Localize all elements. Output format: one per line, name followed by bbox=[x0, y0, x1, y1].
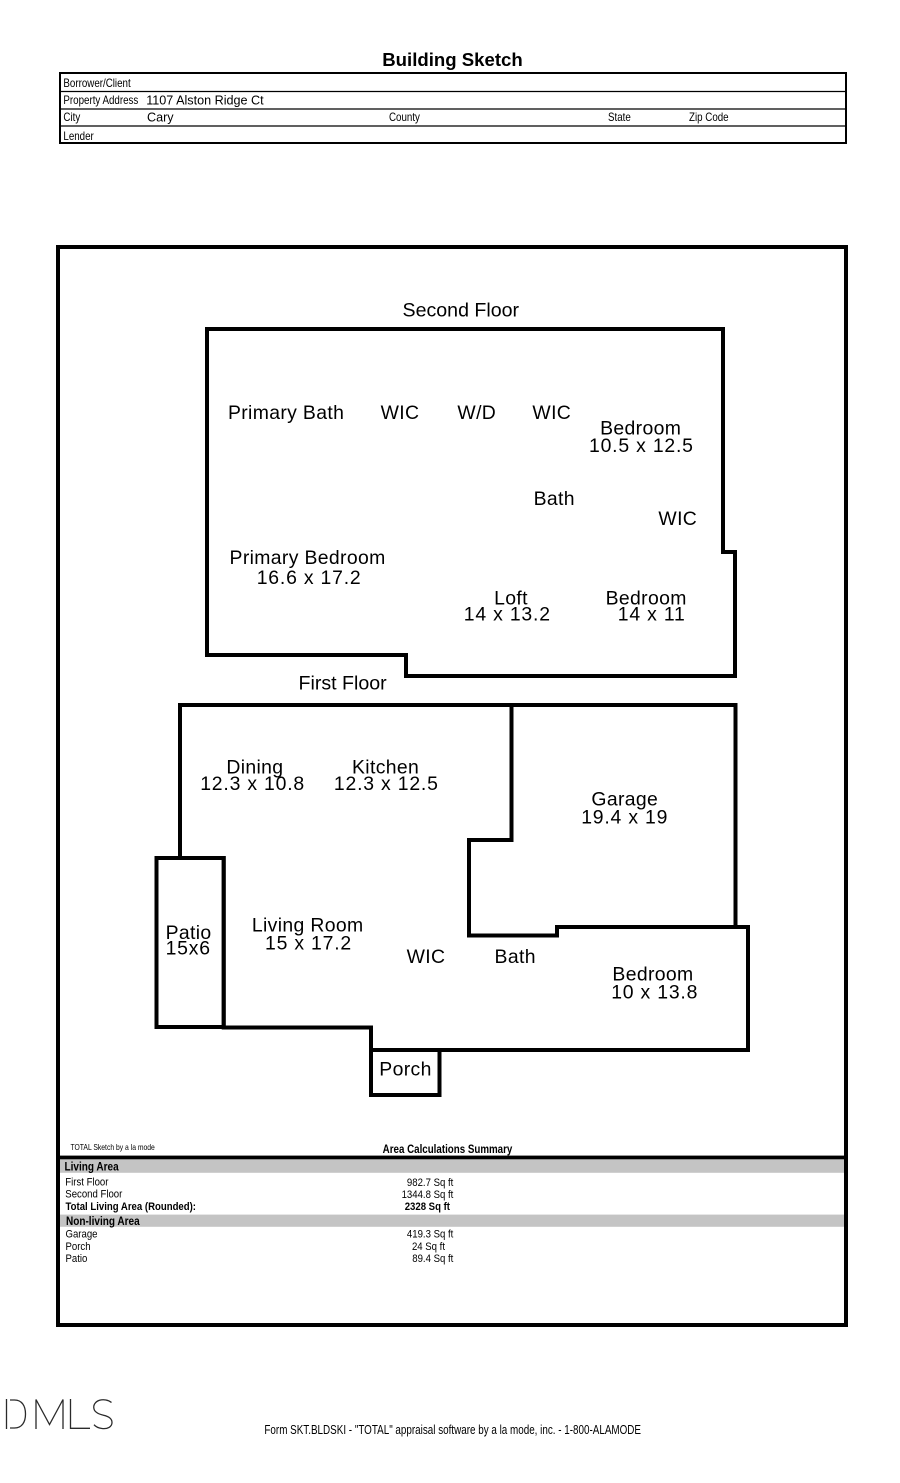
svg-text:First Floor: First Floor bbox=[65, 1177, 109, 1189]
svg-text:WIC: WIC bbox=[381, 402, 420, 424]
svg-text:Building Sketch: Building Sketch bbox=[382, 49, 523, 70]
svg-text:W/D: W/D bbox=[457, 402, 496, 424]
svg-text:Property Address: Property Address bbox=[63, 94, 138, 107]
svg-text:Cary: Cary bbox=[147, 109, 174, 124]
svg-text:Second Floor: Second Floor bbox=[403, 300, 520, 322]
svg-text:County: County bbox=[389, 111, 421, 124]
svg-text:WIC: WIC bbox=[532, 402, 571, 424]
svg-text:City: City bbox=[63, 111, 80, 124]
svg-text:Garage: Garage bbox=[66, 1229, 98, 1241]
svg-text:14 x 13.2: 14 x 13.2 bbox=[464, 604, 551, 626]
svg-text:89.4 Sq ft: 89.4 Sq ft bbox=[412, 1253, 453, 1265]
svg-text:Form SKT.BLDSKI - "TOTAL" appr: Form SKT.BLDSKI - "TOTAL" appraisal soft… bbox=[264, 1424, 641, 1437]
svg-text:Total Living Area (Rounded):: Total Living Area (Rounded): bbox=[66, 1202, 197, 1214]
svg-text:Porch: Porch bbox=[379, 1059, 431, 1081]
svg-text:1107 Alston Ridge Ct: 1107 Alston Ridge Ct bbox=[146, 92, 264, 107]
svg-text:15x6: 15x6 bbox=[166, 937, 211, 959]
svg-text:10.5 x 12.5: 10.5 x 12.5 bbox=[589, 435, 694, 457]
svg-text:15 x 17.2: 15 x 17.2 bbox=[265, 933, 352, 955]
svg-text:14 x 11: 14 x 11 bbox=[618, 604, 686, 626]
svg-text:Bath: Bath bbox=[495, 946, 536, 968]
svg-text:WIC: WIC bbox=[658, 508, 697, 530]
svg-text:12.3 x 10.8: 12.3 x 10.8 bbox=[200, 773, 305, 795]
svg-text:Second Floor: Second Floor bbox=[65, 1189, 123, 1201]
svg-text:Area Calculations Summary: Area Calculations Summary bbox=[383, 1143, 513, 1156]
svg-text:First Floor: First Floor bbox=[299, 673, 388, 695]
svg-text:Non-living Area: Non-living Area bbox=[66, 1215, 140, 1228]
svg-text:1344.8 Sq ft: 1344.8 Sq ft bbox=[402, 1189, 454, 1201]
svg-text:10 x 13.8: 10 x 13.8 bbox=[611, 982, 698, 1004]
svg-text:Borrower/Client: Borrower/Client bbox=[63, 77, 130, 90]
svg-text:Living Area: Living Area bbox=[65, 1161, 120, 1174]
svg-text:Bath: Bath bbox=[534, 488, 575, 510]
svg-text:Porch: Porch bbox=[66, 1241, 91, 1253]
svg-text:16.6 x 17.2: 16.6 x 17.2 bbox=[257, 567, 362, 589]
svg-text:982.7 Sq ft: 982.7 Sq ft bbox=[407, 1177, 453, 1189]
svg-text:Primary Bedroom: Primary Bedroom bbox=[230, 547, 386, 569]
svg-text:Zip Code: Zip Code bbox=[689, 111, 729, 124]
svg-text:12.3 x 12.5: 12.3 x 12.5 bbox=[334, 773, 439, 795]
svg-text:419.3 Sq ft: 419.3 Sq ft bbox=[407, 1229, 453, 1241]
svg-text:Patio: Patio bbox=[66, 1253, 88, 1265]
svg-text:2328 Sq ft: 2328 Sq ft bbox=[405, 1202, 451, 1214]
svg-text:Primary Bath: Primary Bath bbox=[228, 402, 344, 424]
svg-text:Lender: Lender bbox=[63, 130, 94, 143]
svg-text:TOTAL Sketch by a la mode: TOTAL Sketch by a la mode bbox=[71, 1142, 155, 1152]
svg-text:State: State bbox=[608, 111, 631, 124]
svg-text:24 Sq ft: 24 Sq ft bbox=[412, 1241, 445, 1253]
svg-text:19.4 x 19: 19.4 x 19 bbox=[581, 807, 668, 829]
svg-text:WIC: WIC bbox=[407, 946, 446, 968]
